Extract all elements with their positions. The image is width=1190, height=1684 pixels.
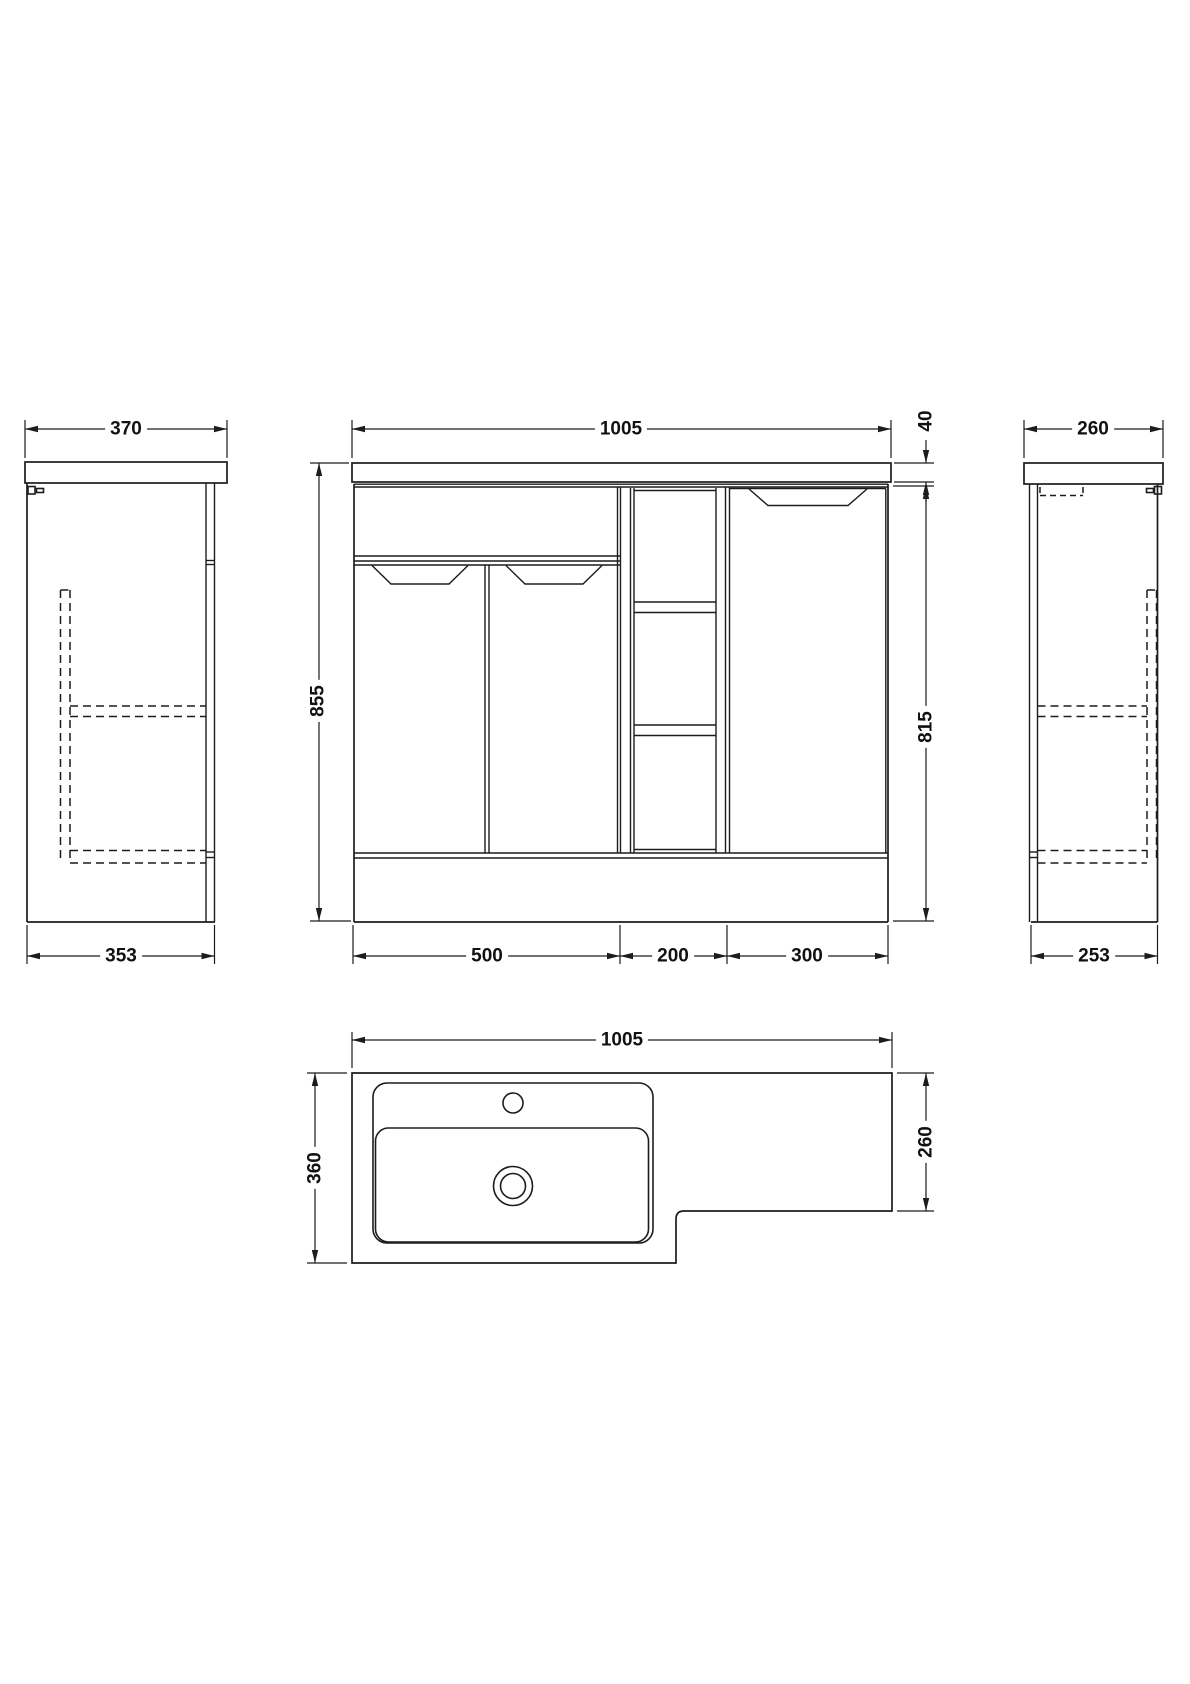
tap-hole-icon [503,1093,523,1113]
dim-label-855: 855 [309,680,328,722]
hidden-shelf-lines [1038,590,1157,863]
dim-815 [893,486,934,921]
worktop-side [25,462,227,483]
worktop-front [352,463,891,482]
door-handle-recess [506,566,602,585]
basin-bowl [376,1128,649,1242]
drain-icon [494,1167,533,1206]
door-front-edge [206,483,215,922]
right-door [730,487,886,853]
right-side-view [1024,420,1163,964]
hinge-icon [1147,487,1162,495]
left-doors [354,487,621,853]
basin-rim [373,1083,653,1243]
door-handle-recess [749,489,867,506]
dim-label-253: 253 [1073,947,1115,966]
dim-label-260-plan: 260 [917,1121,936,1163]
cabinet-side-outline [27,483,215,922]
open-shelf-column [631,487,726,853]
dim-label-260-top: 260 [1072,420,1114,439]
dim-label-40: 40 [917,405,936,436]
hinge-icon [28,487,44,495]
dim-label-360: 360 [306,1147,325,1189]
hidden-shelf-lines [61,590,207,863]
door-front-edge [1030,484,1038,922]
plan-view [307,1032,934,1263]
dim-40 [894,440,934,503]
dim-label-300: 300 [786,947,828,966]
worktop-side [1024,463,1163,484]
front-view [310,420,934,964]
technical-drawing-page: 370 353 1005 40 855 815 500 200 300 260 … [0,0,1190,1684]
dim-label-370: 370 [105,420,147,439]
plinth [354,853,888,858]
left-side-view [25,420,227,964]
vanity-unit-drawing [0,0,1190,1684]
dim-label-353: 353 [100,947,142,966]
dim-label-500: 500 [466,947,508,966]
hidden-rail-lines [1040,487,1083,496]
dim-label-1005-plan: 1005 [596,1031,648,1050]
worktop-plan-outline [352,1073,892,1263]
drain-icon-inner [501,1174,526,1199]
drawer-front [354,556,620,561]
door-handle-recess [372,566,468,585]
dim-label-200: 200 [652,947,694,966]
dim-label-1005-front: 1005 [595,420,647,439]
dim-label-815: 815 [917,706,936,748]
cabinet-side-outline [1031,484,1158,922]
